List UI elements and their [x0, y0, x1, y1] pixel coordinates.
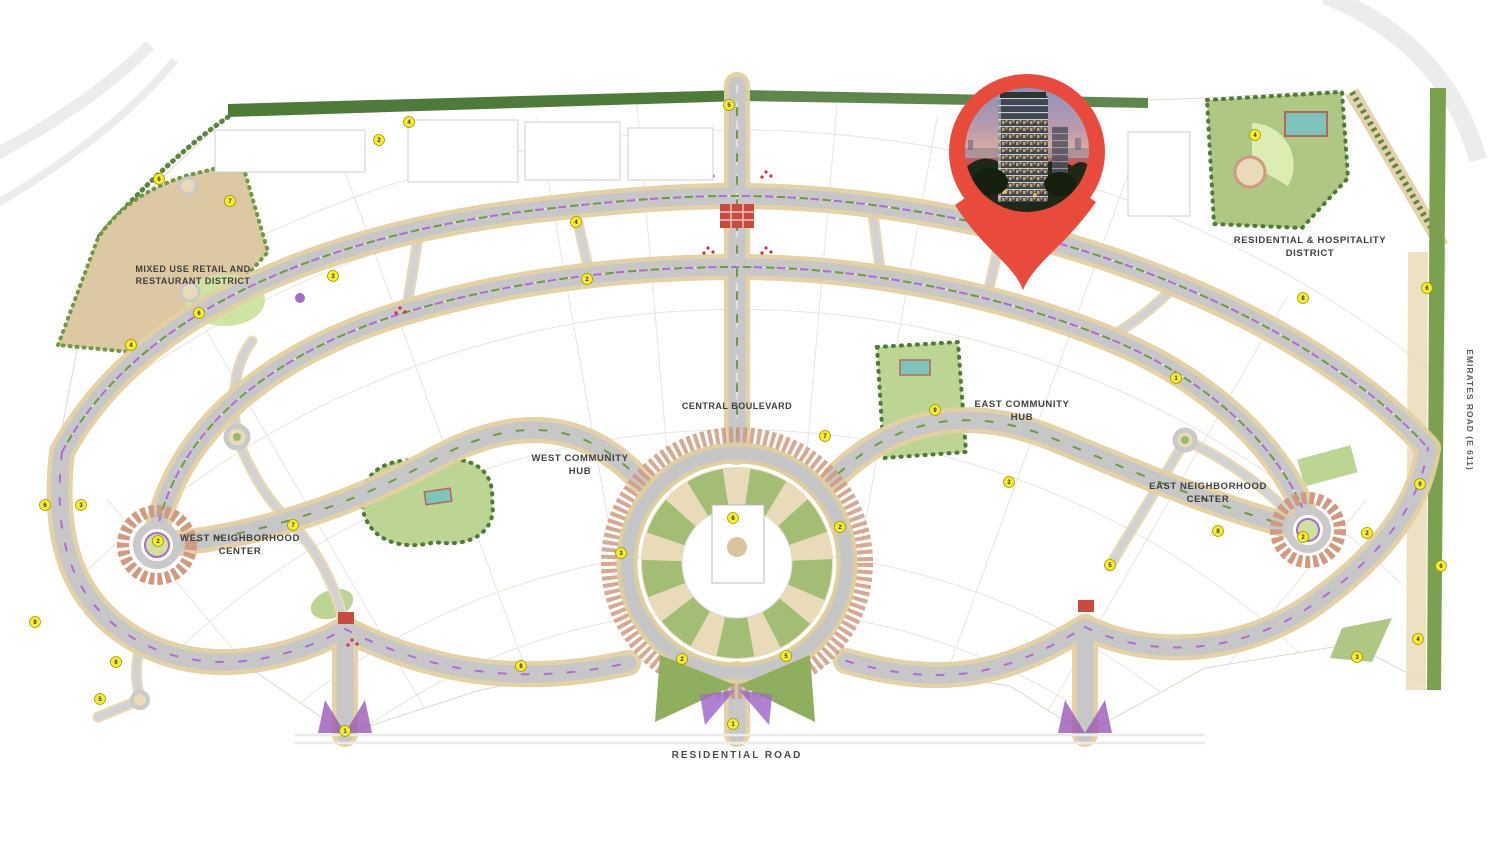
- svg-text:EAST NEIGHBORHOOD: EAST NEIGHBORHOOD: [1149, 481, 1267, 492]
- svg-text:WEST NEIGHBORHOOD: WEST NEIGHBORHOOD: [180, 533, 300, 544]
- label-central-boulevard: CENTRAL BOULEVARD: [682, 401, 792, 411]
- label-residential-road: RESIDENTIAL ROAD: [672, 750, 803, 761]
- svg-text:WEST COMMUNITY: WEST COMMUNITY: [531, 453, 628, 464]
- svg-text:DISTRICT: DISTRICT: [1286, 248, 1335, 259]
- svg-text:RESTAURANT DISTRICT: RESTAURANT DISTRICT: [136, 276, 251, 286]
- svg-text:HUB: HUB: [1011, 412, 1033, 423]
- label-emirates-road: EMIRATES ROAD (E 611): [1465, 349, 1475, 470]
- svg-text:MIXED USE RETAIL AND: MIXED USE RETAIL AND: [135, 264, 250, 274]
- svg-text:CENTER: CENTER: [219, 546, 262, 557]
- residential-road-lines: [295, 735, 1205, 743]
- svg-text:EAST COMMUNITY: EAST COMMUNITY: [975, 399, 1070, 410]
- svg-text:CENTER: CENTER: [1187, 494, 1230, 505]
- central-plaza: [609, 435, 865, 725]
- svg-text:CENTRAL BOULEVARD: CENTRAL BOULEVARD: [682, 401, 792, 411]
- svg-text:RESIDENTIAL & HOSPITALITY: RESIDENTIAL & HOSPITALITY: [1234, 235, 1386, 246]
- svg-text:EMIRATES ROAD (E 611): EMIRATES ROAD (E 611): [1465, 349, 1475, 470]
- svg-text:HUB: HUB: [569, 466, 591, 477]
- masterplan-svg: MIXED USE RETAIL AND RESTAURANT DISTRICT…: [0, 0, 1500, 850]
- label-residential-hospitality-district: RESIDENTIAL & HOSPITALITY DISTRICT: [1234, 235, 1386, 259]
- svg-text:RESIDENTIAL ROAD: RESIDENTIAL ROAD: [672, 750, 803, 761]
- masterplan-map: MIXED USE RETAIL AND RESTAURANT DISTRICT…: [0, 0, 1500, 850]
